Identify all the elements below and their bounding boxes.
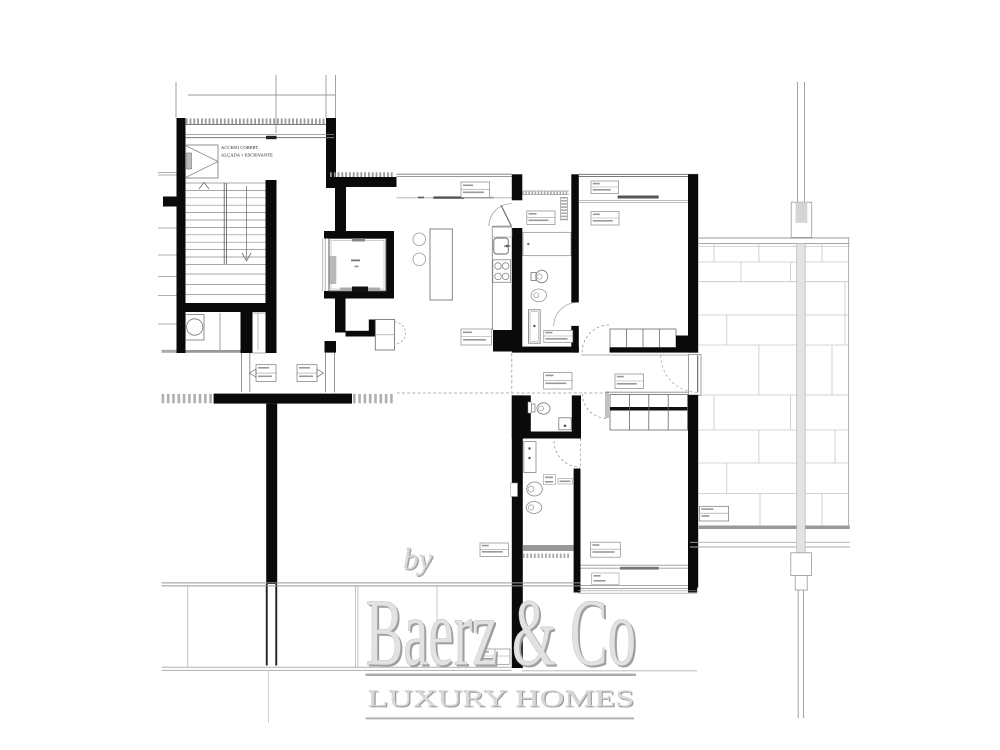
svg-text:ALÇADA + ESCRIVANTE: ALÇADA + ESCRIVANTE bbox=[221, 153, 273, 158]
svg-text:by: by bbox=[403, 541, 433, 576]
svg-text:ACCESO COBERT.: ACCESO COBERT. bbox=[221, 145, 259, 150]
svg-text:LUXURY HOMES: LUXURY HOMES bbox=[367, 686, 634, 712]
svg-text:Baerz & Co: Baerz & Co bbox=[365, 579, 636, 686]
